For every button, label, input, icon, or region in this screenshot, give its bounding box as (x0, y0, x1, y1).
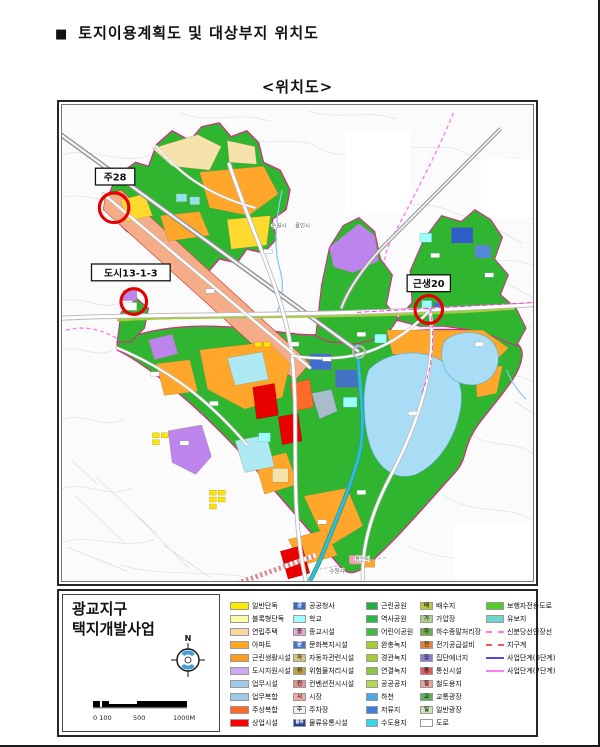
legend-swatch (486, 615, 504, 623)
location-map: 수원시 용인시 용인시 수원시 주28 도시13-1-3 근생20 (62, 105, 533, 581)
legend-item: 배배수지 (420, 599, 486, 612)
legend-item: 통통신시설 (420, 664, 486, 677)
legend-swatch (230, 628, 249, 636)
legend-item: 역사공원 (366, 612, 420, 625)
legend-label: 업무시설 (252, 680, 293, 688)
legend-item: 학교 (293, 612, 366, 625)
city-label-suwon-top: 수원시 (271, 221, 286, 229)
legend-label: 공공공지 (381, 680, 420, 688)
legend-label: 연결녹지 (381, 667, 420, 675)
legend-item: 시시장 (293, 690, 366, 703)
legend-swatch (230, 719, 249, 727)
legend-swatch (293, 615, 306, 623)
legend-swatch: 공 (293, 602, 306, 610)
legend-label: 근린공원 (381, 602, 420, 610)
legend-swatch (230, 693, 249, 701)
legend-swatch: 교 (420, 693, 433, 701)
legend-label: 가압장 (436, 615, 486, 623)
legend-label: 물류유통시설 (309, 719, 366, 727)
legend-item: 경관녹지 (366, 651, 420, 664)
callout-label-ju28: 주28 (104, 172, 127, 184)
legend-swatch (366, 693, 378, 701)
legend-item: 주주차장 (293, 703, 366, 716)
scale-tick-labels: 0 100 500 1000M (93, 714, 203, 723)
legend-swatch (366, 680, 378, 688)
callout-label-dosi13-1-3: 도시13-1-3 (104, 267, 158, 279)
legend-label: 수도용지 (381, 719, 420, 727)
legend-item: 문문화복지시설 (293, 638, 366, 651)
legend-swatch (230, 680, 249, 688)
legend-label: 학교 (309, 615, 366, 623)
legend-column-3: 근린공원역사공원어린이공원완충녹지경관녹지연결녹지공공공지하천저류지수도용지 (366, 599, 420, 732)
legend-column-1: 일반단독블록형단독연립주택아파트근린생활시설도시지원시설업무시설업무복합주상복합… (230, 599, 293, 732)
project-title-box: 광교지구 택지개발사업 N (62, 594, 220, 732)
legend-swatch (420, 719, 433, 727)
scale-tick-500: 500 (133, 714, 145, 722)
legend-column-4: 배배수지가가압장하하수종말처리장전전기공급설비집집단에너지통통신시설철철도용지교… (420, 599, 486, 732)
legend-label: 전기공급설비 (436, 641, 486, 649)
legend-swatch (366, 602, 378, 610)
legend-label: 집단에너지 (436, 654, 486, 662)
legend-item: 완충녹지 (366, 638, 420, 651)
legend-item: 사업단계(7단계) (486, 664, 558, 677)
legend-item: 종종교시설 (293, 625, 366, 638)
legend-label: 신분당선연장선 (507, 628, 558, 636)
legend-label: 도로 (436, 719, 486, 727)
page-title: ■토지이용계획도 및 대상부지 위치도 (55, 22, 319, 43)
scale-bar: 0 100 500 1000M (93, 695, 203, 723)
legend-item: 근린공원 (366, 599, 420, 612)
legend-label: 문화복지시설 (309, 641, 366, 649)
legend-item: 어린이공원 (366, 625, 420, 638)
legend-swatch (366, 615, 378, 623)
legend-label: 어린이공원 (381, 628, 420, 636)
legend-swatch (366, 719, 378, 727)
legend-swatch: 물류 (293, 719, 306, 727)
legend-label: 사업단계(6단계) (507, 654, 558, 662)
city-label-suwon-bottom: 수원시 (329, 567, 344, 575)
legend-item: 전전기공급설비 (420, 638, 486, 651)
legend-swatch: 전 (420, 641, 433, 649)
legend-swatch (486, 641, 504, 649)
map-subtitle: <위치도> (57, 76, 538, 97)
legend-panel: 광교지구 택지개발사업 N (57, 589, 538, 737)
legend-label: 종교시설 (309, 628, 366, 636)
legend-label: 공공청사 (309, 602, 366, 610)
legend-item: 저류지 (366, 703, 420, 716)
document-page: ■토지이용계획도 및 대상부지 위치도 <위치도> (0, 0, 600, 747)
scale-tick-0-100: 0 100 (93, 714, 112, 722)
legend-swatch (366, 628, 378, 636)
legend-label: 주상복합 (252, 706, 293, 714)
legend-item: 업무복합 (230, 690, 293, 703)
legend-swatch: 주 (293, 706, 306, 714)
legend-label: 경관녹지 (381, 654, 420, 662)
legend-item: 공공공청사 (293, 599, 366, 612)
legend-swatch: 종 (293, 628, 306, 636)
legend-swatch: 일 (420, 706, 433, 714)
legend-label: 아파트 (252, 641, 293, 649)
map-frame: 수원시 용인시 용인시 수원시 주28 도시13-1-3 근생20 (61, 104, 534, 582)
legend-label: 배수지 (436, 602, 486, 610)
legend-item: 도시지원시설 (230, 664, 293, 677)
legend-label: 저류지 (381, 706, 420, 714)
north-label: N (171, 635, 205, 643)
legend-item: 아파트 (230, 638, 293, 651)
city-label-yongin-bottom: 용인시 (355, 556, 370, 563)
legend-label: 자동차관련시설 (309, 654, 366, 662)
legend-label: 상업시설 (252, 719, 293, 727)
legend-swatch (486, 654, 504, 662)
legend-swatch: 자 (293, 654, 306, 662)
legend-swatch: 하 (420, 628, 433, 636)
legend-item: 근린생활시설 (230, 651, 293, 664)
legend-swatch: 문 (293, 641, 306, 649)
legend-label: 통신시설 (436, 667, 486, 675)
legend-item: 블록형단독 (230, 612, 293, 625)
project-name-line1: 광교지구 (63, 600, 219, 620)
legend-label: 시장 (309, 693, 366, 701)
legend-label: 교통광장 (436, 693, 486, 701)
legend-item: 하하수종말처리장 (420, 625, 486, 638)
legend-label: 유보지 (507, 615, 558, 623)
legend-label: 연립주택 (252, 628, 293, 636)
legend-swatch (486, 667, 504, 675)
legend-item: 하천 (366, 690, 420, 703)
legend-label: 철도용지 (436, 680, 486, 688)
legend-label: 보행자전용도로 (507, 602, 558, 610)
legend-swatch (230, 706, 249, 714)
legend-label: 위험물처리시설 (309, 667, 366, 675)
legend-entries: 일반단독블록형단독연립주택아파트근린생활시설도시지원시설업무시설업무복합주상복합… (225, 594, 558, 732)
legend-column-2: 공공공청사학교종종교시설문문화복지시설자자동차관련시설위위험물처리시설컨컨벤션전… (293, 599, 366, 732)
legend-swatch (366, 706, 378, 714)
legend-label: 일반광장 (436, 706, 486, 714)
legend-item: 집집단에너지 (420, 651, 486, 664)
legend-swatch: 가 (420, 615, 433, 623)
legend-item: 신분당선연장선 (486, 625, 558, 638)
legend-label: 지구계 (507, 641, 558, 649)
legend-swatch (230, 667, 249, 675)
legend-swatch (230, 654, 249, 662)
legend-swatch: 배 (420, 602, 433, 610)
map-panel: 수원시 용인시 용인시 수원시 주28 도시13-1-3 근생20 (57, 100, 538, 586)
legend-label: 역사공원 (381, 615, 420, 623)
legend-item: 사업단계(6단계) (486, 651, 558, 664)
legend-item: 수도용지 (366, 716, 420, 729)
callout-label-geunsaeng20: 근생20 (413, 277, 445, 290)
legend-item: 일반단독 (230, 599, 293, 612)
legend-item: 교교통광장 (420, 690, 486, 703)
north-arrow-icon: N (171, 635, 205, 681)
legend-swatch (366, 667, 378, 675)
legend-item: 유보지 (486, 612, 558, 625)
legend-item: 연결녹지 (366, 664, 420, 677)
legend-item: 지구계 (486, 638, 558, 651)
legend-label: 컨벤션전시시설 (309, 680, 366, 688)
legend-item: 컨컨벤션전시시설 (293, 677, 366, 690)
legend-item: 철철도용지 (420, 677, 486, 690)
legend-item: 주상복합 (230, 703, 293, 716)
legend-item: 업무시설 (230, 677, 293, 690)
city-label-yongin-top: 용인시 (295, 222, 310, 229)
legend-item: 도로 (420, 716, 486, 729)
legend-label: 하수종말처리장 (436, 628, 486, 636)
legend-item: 연립주택 (230, 625, 293, 638)
legend-column-5: 보행자전용도로유보지신분당선연장선지구계사업단계(6단계)사업단계(7단계) (486, 599, 558, 732)
legend-item: 상업시설 (230, 716, 293, 729)
legend-item: 위위험물처리시설 (293, 664, 366, 677)
legend-item: 자자동차관련시설 (293, 651, 366, 664)
legend-swatch (230, 641, 249, 649)
legend-swatch: 위 (293, 667, 306, 675)
legend-label: 업무복합 (252, 693, 293, 701)
legend-item: 공공공지 (366, 677, 420, 690)
legend-label: 완충녹지 (381, 641, 420, 649)
legend-item: 보행자전용도로 (486, 599, 558, 612)
title-text: 토지이용계획도 및 대상부지 위치도 (78, 24, 319, 42)
legend-swatch: 시 (293, 693, 306, 701)
legend-swatch: 집 (420, 654, 433, 662)
scale-tick-1000m: 1000M (173, 714, 195, 722)
legend-swatch (230, 602, 249, 610)
legend-swatch: 컨 (293, 680, 306, 688)
legend-swatch (486, 602, 504, 610)
legend-swatch (230, 615, 249, 623)
legend-item: 가가압장 (420, 612, 486, 625)
legend-label: 하천 (381, 693, 420, 701)
legend-label: 주차장 (309, 706, 366, 714)
legend-label: 근린생활시설 (252, 654, 293, 662)
legend-swatch (366, 641, 378, 649)
legend-label: 도시지원시설 (252, 667, 293, 675)
legend-swatch (486, 628, 504, 636)
legend-swatch: 철 (420, 680, 433, 688)
legend-label: 사업단계(7단계) (507, 667, 558, 675)
legend-label: 일반단독 (252, 602, 293, 610)
legend-label: 블록형단독 (252, 615, 293, 623)
legend-item: 일일반광장 (420, 703, 486, 716)
legend-swatch: 통 (420, 667, 433, 675)
title-bullet: ■ (55, 27, 68, 42)
legend-item: 물류물류유통시설 (293, 716, 366, 729)
legend-swatch (366, 654, 378, 662)
